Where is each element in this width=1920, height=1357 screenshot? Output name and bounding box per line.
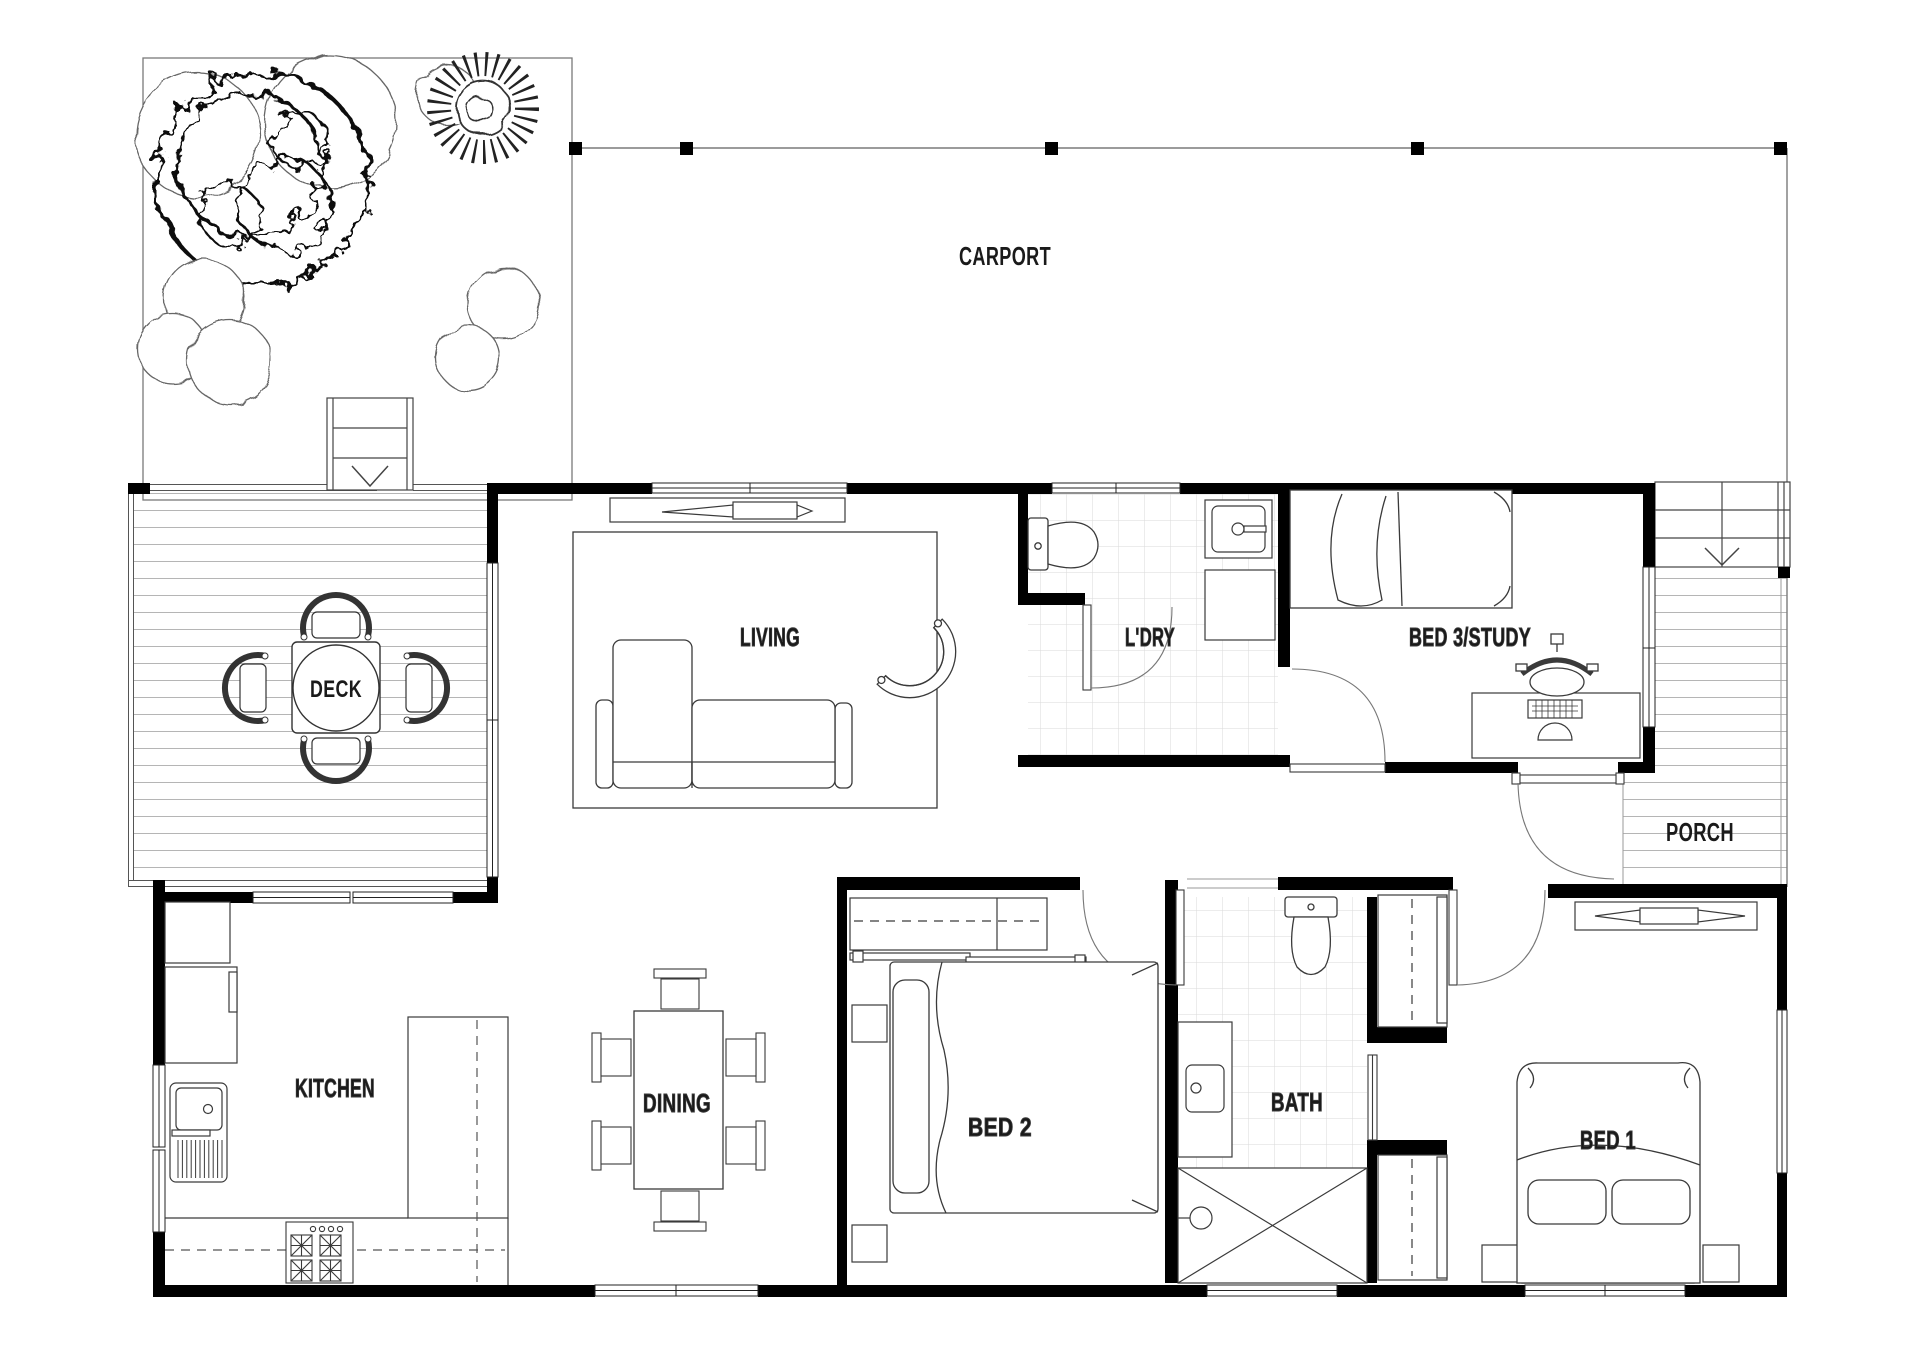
blanket <box>1517 1063 1700 1283</box>
dining: DINING <box>592 969 765 1231</box>
bed-icon <box>1517 1063 1700 1283</box>
fridge-icon <box>165 902 237 1063</box>
cooktop-icon <box>286 1222 353 1283</box>
window <box>1777 1010 1787 1173</box>
pillow-icon <box>1612 1180 1690 1224</box>
kitchen-label: KITCHEN <box>295 1073 375 1103</box>
entry-door <box>1512 773 1624 879</box>
porch-floor-strip <box>1623 773 1655 887</box>
window <box>652 483 847 493</box>
toilet-icon <box>1028 518 1098 570</box>
tree-outline-icon <box>136 56 396 197</box>
vanity-sink-icon <box>1178 1022 1232 1157</box>
armchair-icon <box>875 617 975 717</box>
window <box>487 563 498 877</box>
burner-icon <box>320 1235 341 1256</box>
bed2-label: BED 2 <box>968 1112 1032 1142</box>
door-swing-arc <box>1292 669 1385 762</box>
deck-stairs-icon <box>327 398 413 490</box>
bed1-label: BED 1 <box>1580 1125 1636 1155</box>
dining-chair-icon <box>592 1033 631 1082</box>
window <box>595 1285 758 1296</box>
kitchen: KITCHEN <box>165 902 508 1285</box>
bed1-door <box>1449 890 1545 985</box>
floor-plan-page: CARPORT <box>0 0 1920 1357</box>
carport-label: CARPORT <box>959 241 1051 271</box>
carport-area: CARPORT <box>569 142 1787 482</box>
dining-chair-icon <box>592 1121 631 1170</box>
bedside-table-icon <box>1482 1245 1518 1282</box>
wardrobe-icon <box>1378 895 1447 1027</box>
bedside-table-icon <box>852 1225 887 1262</box>
burner-icon <box>291 1235 312 1256</box>
pillow-icon <box>893 980 929 1193</box>
bedside-table-icon <box>852 1005 887 1042</box>
deck-area: DECK <box>128 398 487 887</box>
bath-label: BATH <box>1271 1087 1323 1117</box>
dining-chair-icon <box>726 1121 765 1170</box>
window <box>1643 567 1655 727</box>
floor-plan-drawing: CARPORT <box>0 0 1920 1357</box>
shower-icon <box>1178 1168 1367 1283</box>
laundry-label: L'DRY <box>1125 622 1175 652</box>
window <box>153 1150 165 1232</box>
door-swing-arc <box>1518 783 1614 879</box>
kitchen-sink-icon <box>170 1083 227 1182</box>
dining-chair-icon <box>726 1033 765 1082</box>
burner-icon <box>320 1260 341 1281</box>
porch-label: PORCH <box>1666 817 1734 847</box>
bed3-label: BED 3/STUDY <box>1409 622 1531 652</box>
wardrobe-icon <box>850 898 1086 966</box>
window <box>253 892 350 903</box>
desk-icon <box>1472 693 1640 758</box>
tv-cabinet-icon <box>610 498 845 522</box>
laundry-sink-icon <box>1205 500 1272 558</box>
dining-chair-icon <box>654 969 706 1009</box>
wardrobe-icon <box>1378 1155 1447 1280</box>
window <box>353 892 453 903</box>
bed2-room: BED 2 <box>850 890 1184 1262</box>
bedside-table-icon <box>1703 1245 1739 1282</box>
shower-head-icon <box>1190 1207 1212 1229</box>
bed3-door <box>1290 669 1385 772</box>
bath-door <box>1368 1055 1377 1140</box>
dining-chair-icon <box>654 1191 706 1231</box>
window <box>1207 1285 1337 1296</box>
tree-spiky-icon <box>417 64 527 152</box>
burner-icon <box>291 1260 312 1281</box>
bed-icon <box>890 962 1158 1213</box>
window <box>1525 1285 1685 1296</box>
bed1-room: BED 1 <box>1378 890 1757 1283</box>
deck-label: DECK <box>310 676 362 703</box>
tv-cabinet-icon <box>1575 902 1757 930</box>
porch-stairs-icon <box>1655 482 1790 567</box>
sofa-icon <box>596 640 852 788</box>
bed3-room: BED 3/STUDY <box>1290 490 1640 879</box>
living-room: LIVING <box>573 498 975 808</box>
window <box>1052 483 1180 493</box>
pillow-icon <box>1528 1180 1606 1224</box>
living-label: LIVING <box>740 622 800 652</box>
bush-cluster-se-icon <box>436 267 539 390</box>
bath-entry-threshold <box>1187 879 1278 888</box>
dining-label: DINING <box>643 1088 711 1118</box>
window <box>153 1065 165 1147</box>
bed-icon <box>1290 490 1512 608</box>
door-swing-arc <box>1457 890 1545 985</box>
washing-machine-icon <box>1205 570 1275 640</box>
